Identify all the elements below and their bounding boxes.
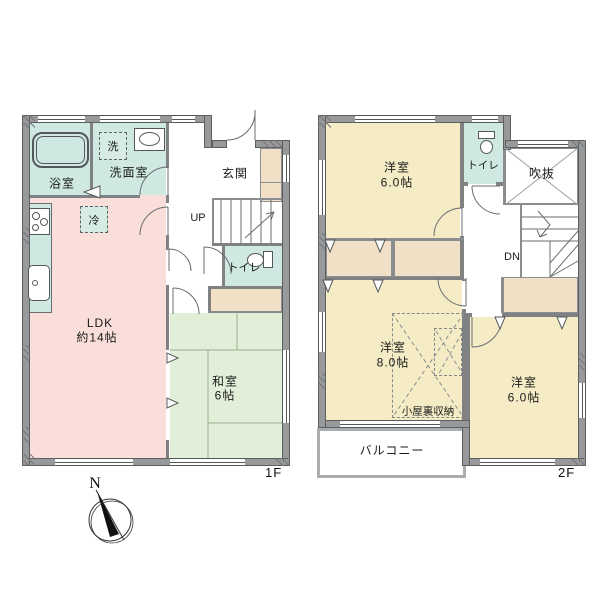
label-ldk-size: 約14帖 — [76, 329, 117, 346]
compass-icon — [82, 488, 142, 548]
label-bathroom: 浴室 — [49, 175, 75, 192]
label-stairs-down: DN — [504, 251, 520, 263]
label-bedroom-west-size: 8.0帖 — [377, 354, 410, 371]
label-toilet-1f: トイレ — [228, 259, 261, 275]
floor-plan-2f: 洋室 6.0帖 トイレ 吹抜 DN 洋室 8.0帖 小屋裏収納 洋室 6.0帖 … — [316, 113, 588, 478]
label-stairs-up: UP — [190, 212, 205, 224]
label-washroom: 洗面室 — [109, 164, 148, 181]
label-void: 吹抜 — [529, 165, 555, 182]
label-washitsu-size: 6帖 — [215, 387, 236, 404]
label-bedroom-east-size: 6.0帖 — [508, 389, 541, 406]
floor-plan-1f: 浴室 洗 洗面室 玄関 UP トイレ 冷 LDK 約14帖 和室 6帖 — [20, 113, 292, 466]
label-fridge: 冷 — [89, 212, 100, 228]
floor-label-2f: 2F — [558, 465, 575, 480]
floorplan-page: { "floor1": { "label": "1F", "bathroom":… — [0, 0, 600, 600]
floor-label-1f: 1F — [265, 465, 282, 480]
label-toilet-2f: トイレ — [467, 158, 499, 173]
label-entrance: 玄関 — [222, 165, 248, 182]
label-attic-storage: 小屋裏収納 — [402, 404, 455, 419]
linework-1f — [20, 113, 292, 466]
label-bedroom-north-size: 6.0帖 — [381, 174, 414, 191]
label-balcony: バルコニー — [360, 442, 425, 459]
label-washer: 洗 — [108, 138, 119, 154]
